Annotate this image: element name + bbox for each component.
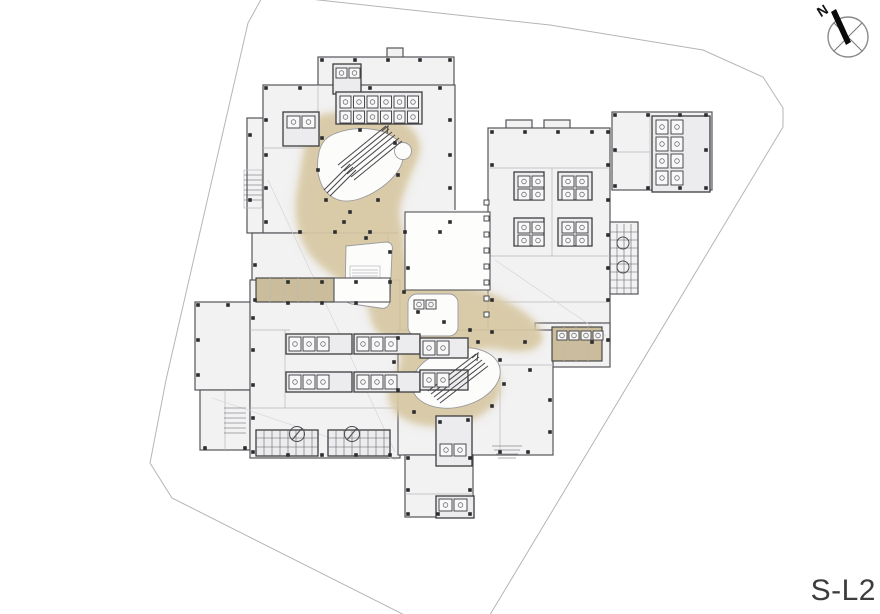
north-label: N [814, 1, 831, 20]
north-compass-icon: N [814, 1, 868, 57]
floor-level-label: S-L2 [811, 574, 876, 607]
floor-plan-drawing: N S-L2 [0, 0, 880, 614]
dock-bottom-2 [328, 427, 390, 457]
floor-plan-sheet: N S-L2 [0, 0, 880, 614]
central-room [405, 212, 490, 290]
dock-bottom-1 [256, 427, 318, 457]
